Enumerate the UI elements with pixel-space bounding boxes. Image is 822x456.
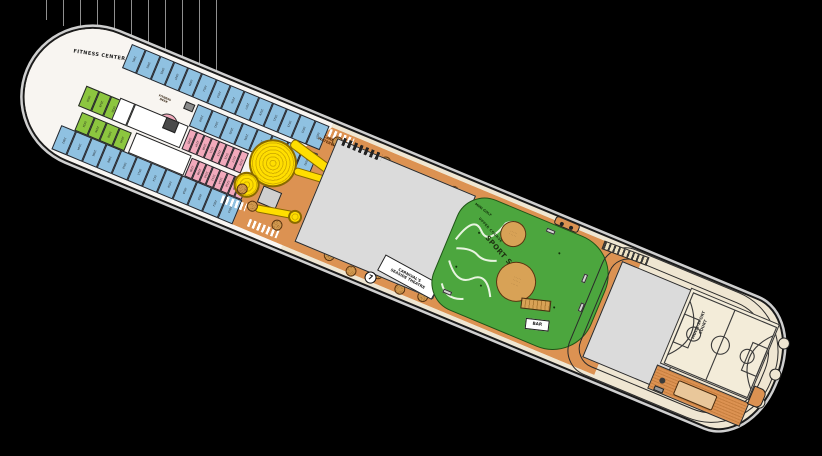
bar-text: BAR [532,322,542,328]
mast-line-icon [182,0,183,66]
ship-deck: FITNESS CENTER FITNESS DESK 200120032005… [1,5,803,446]
mast-line-icon [199,0,200,71]
mast-line-icon [216,0,217,77]
deck-plan-scene: FITNESS CENTER FITNESS DESK 200120032005… [0,0,822,456]
deck-number: 7 [367,273,374,282]
mast-line-icon [46,0,47,20]
